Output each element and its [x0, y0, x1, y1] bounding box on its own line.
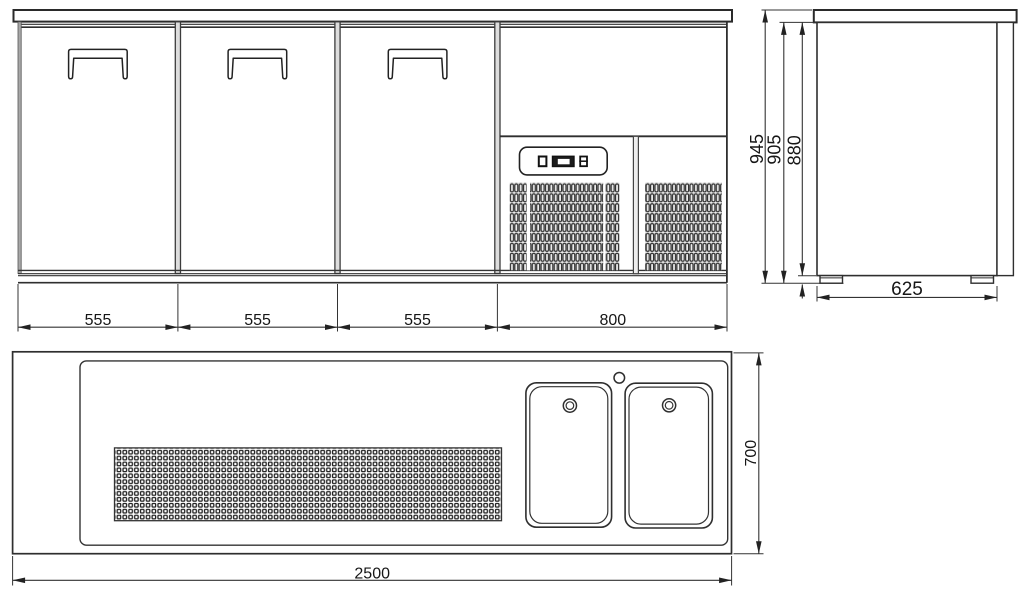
svg-text:800: 800: [599, 312, 626, 329]
svg-text:2500: 2500: [354, 566, 390, 583]
svg-text:700: 700: [743, 440, 760, 467]
svg-text:555: 555: [85, 312, 112, 329]
svg-text:555: 555: [244, 312, 271, 329]
svg-text:880: 880: [784, 135, 804, 165]
svg-text:555: 555: [404, 312, 431, 329]
svg-text:905: 905: [765, 135, 785, 165]
svg-text:625: 625: [891, 279, 923, 300]
